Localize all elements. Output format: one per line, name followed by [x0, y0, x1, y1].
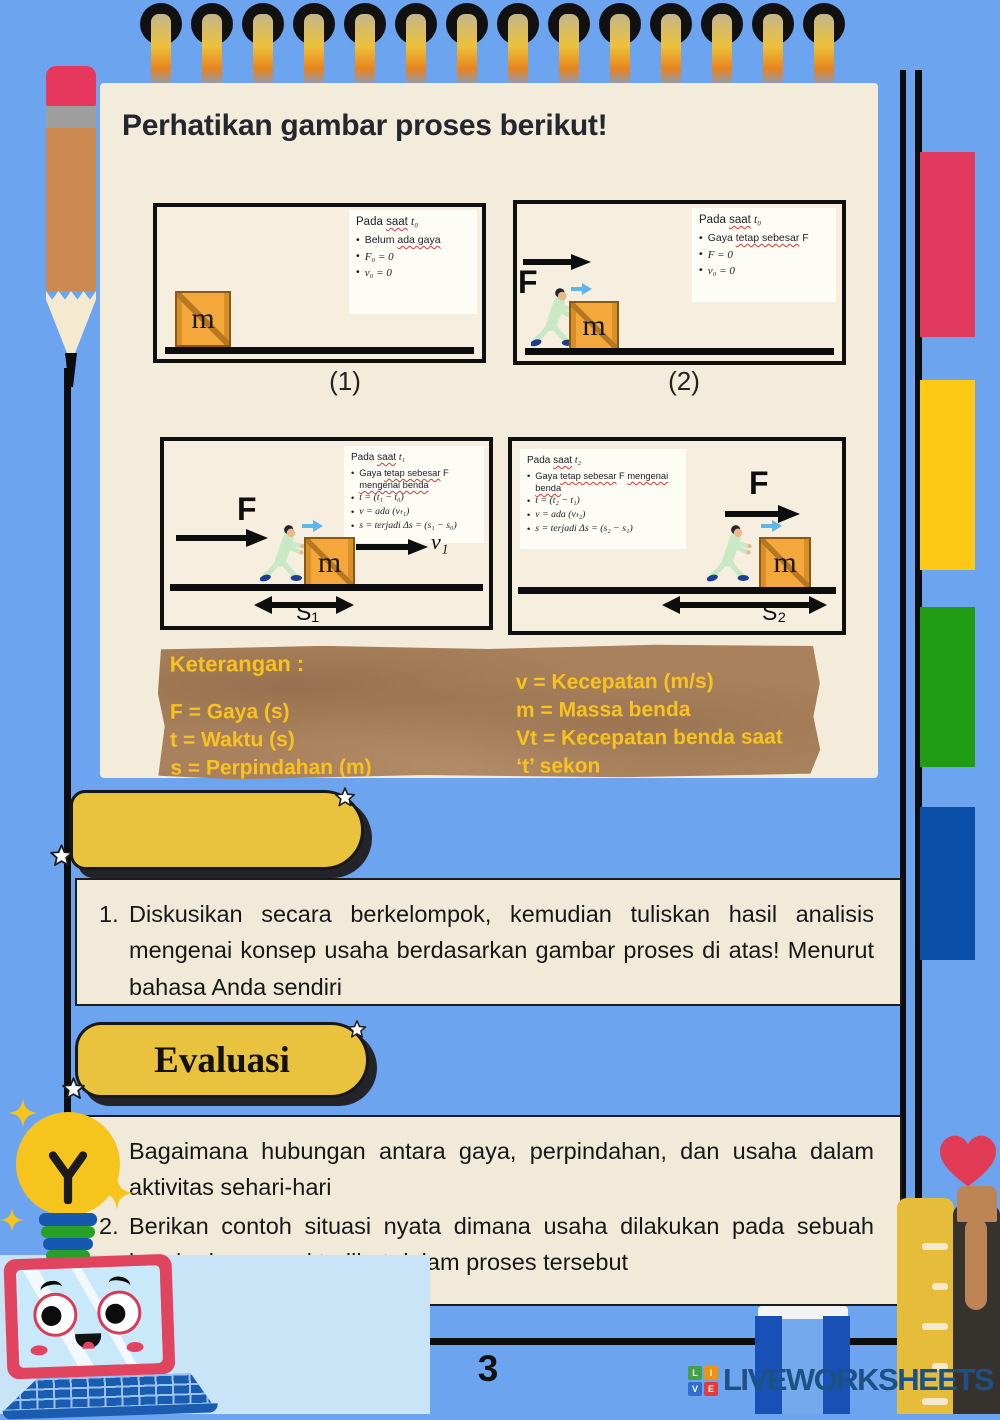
floor-line	[165, 347, 474, 354]
heart-icon	[940, 1135, 996, 1187]
star-icon	[48, 843, 75, 870]
keterangan-entry: t = Waktu (s)	[170, 726, 371, 755]
keterangan-box: Keterangan : F = Gaya (s) t = Waktu (s) …	[158, 643, 821, 779]
info-bullet: v = ada (vₜ₂)	[527, 509, 681, 522]
eye	[97, 1290, 143, 1336]
info-bullet: Gaya tetap sebesar F mengenai benda	[351, 467, 479, 491]
pen-clip	[965, 1218, 987, 1310]
pen-cap	[957, 1186, 997, 1222]
info-card: Pada saat t₀ Belum ada gaya F₀ = 0 v₀ = …	[349, 210, 477, 314]
pencil-ferrule	[46, 106, 96, 128]
keterangan-entry: ‘t’ sekon	[516, 751, 783, 780]
pencil-body	[46, 128, 96, 291]
discussion-box: 1. Diskusikan secara berkelompok, kemudi…	[75, 878, 902, 1006]
motion-arrow-icon	[302, 519, 324, 533]
info-title: Pada saat t₀	[356, 216, 472, 228]
liveworksheets-brand[interactable]: LIVEWORKSHEETS	[723, 1362, 993, 1398]
keterangan-entry: m = Massa benda	[516, 695, 783, 724]
info-bullet: Belum ada gaya	[356, 234, 472, 248]
crate-label: m	[191, 304, 214, 334]
blush	[30, 1345, 47, 1356]
lightbulb-icon	[16, 1112, 120, 1216]
mouth	[75, 1333, 102, 1349]
pencil-graphic	[46, 66, 96, 387]
distance-label: S₂	[762, 599, 786, 626]
crate-label: m	[582, 311, 605, 341]
laptop-screen	[3, 1254, 175, 1380]
list-item: 1. Diskusikan secara berkelompok, kemudi…	[99, 896, 874, 1005]
motion-arrow-icon	[571, 282, 593, 296]
ruler-tick	[922, 1323, 948, 1330]
ruler-tick	[922, 1243, 948, 1250]
floor-line	[518, 587, 836, 594]
crate: m	[175, 291, 231, 347]
pencil-eraser	[46, 66, 96, 106]
list-number: 1.	[99, 896, 129, 1005]
info-title: Pada saat t₀	[699, 214, 831, 226]
crate: m	[569, 301, 619, 351]
figure-2: F m Pada saat t₀ Gaya tetap sebesar F F …	[513, 200, 846, 365]
info-bullet: F = 0	[699, 248, 831, 262]
bookmark-tab-green	[920, 607, 975, 767]
info-bullet: t = (t₂ − t₁)	[527, 495, 681, 508]
evaluasi-banner: Evaluasi	[75, 1022, 369, 1098]
keterangan-entry: s = Perpindahan (m)	[170, 754, 371, 783]
person-figure	[707, 524, 753, 586]
crate: m	[759, 537, 811, 589]
crate: m	[304, 537, 355, 588]
sparkle-icon	[0, 1208, 24, 1232]
info-bullet: t = (t₁ − t₀)	[351, 492, 479, 505]
figure-1: m Pada saat t₀ Belum ada gaya F₀ = 0 v₀ …	[153, 203, 486, 363]
bookmark-tab-yellow	[920, 380, 975, 570]
ruler-tick	[932, 1283, 948, 1290]
lightbulb-base	[39, 1213, 97, 1226]
highlight-banner	[70, 790, 364, 870]
info-bullet: Gaya tetap sebesar F	[699, 232, 831, 246]
bookmark-tab-red	[920, 152, 975, 337]
footer-line	[430, 1338, 935, 1345]
keterangan-entry: v = Kecepatan (m/s)	[516, 667, 783, 696]
laptop-screen-face	[16, 1265, 163, 1368]
info-title: Pada saat t₂	[527, 455, 681, 466]
crate-label: m	[318, 548, 341, 578]
velocity-label: v₁	[431, 529, 448, 555]
force-label: F	[237, 493, 257, 525]
page-number: 3	[452, 1348, 524, 1390]
keterangan-left-column: F = Gaya (s) t = Waktu (s) s = Perpindah…	[170, 698, 372, 783]
page-title: Perhatikan gambar proses berikut!	[122, 109, 607, 143]
evaluasi-title: Evaluasi	[154, 1039, 290, 1082]
figure-label: (1)	[285, 366, 405, 397]
eye	[33, 1292, 79, 1338]
info-bullet: F₀ = 0	[356, 250, 472, 264]
keterangan-entry: F = Gaya (s)	[170, 698, 371, 727]
pencil-tip	[46, 291, 96, 353]
star-icon	[60, 1076, 87, 1103]
person-figure	[260, 524, 306, 586]
info-bullet: s = terjadi Δs = (s₁ − s₀)	[351, 520, 479, 533]
blush	[126, 1342, 143, 1353]
info-bullet: Gaya tetap sebesar F mengenai benda	[527, 470, 681, 494]
bookmark-tab-blue	[920, 807, 975, 960]
list-text: Bagaimana hubungan antara gaya, perpinda…	[129, 1133, 874, 1206]
keterangan-entry: Vt = Kecepatan benda saat	[516, 723, 783, 752]
pencil-lead	[46, 353, 96, 387]
star-icon	[333, 786, 357, 810]
list-item: 1. Bagaimana hubungan antara gaya, perpi…	[99, 1133, 874, 1206]
floor-line	[170, 584, 483, 591]
figure-label: (2)	[624, 366, 744, 397]
crate-label: m	[773, 548, 796, 578]
info-bullet: v₀ = 0	[699, 264, 831, 278]
worksheet-page: Perhatikan gambar proses berikut! m Pada…	[0, 0, 1000, 1414]
liveworksheets-logo-icon[interactable]: L I V E	[688, 1366, 718, 1396]
worksheet-panel: Perhatikan gambar proses berikut! m Pada…	[100, 83, 878, 778]
right-rule-line	[900, 70, 906, 1202]
floor-line	[525, 348, 834, 355]
info-title: Pada saat t₁	[351, 452, 479, 463]
laptop-mascot	[0, 1246, 218, 1417]
info-card: Pada saat t₁ Gaya tetap sebesar F mengen…	[344, 446, 484, 543]
figure-4: Pada saat t₂ Gaya tetap sebesar F mengen…	[508, 437, 846, 635]
keterangan-heading: Keterangan :	[170, 651, 305, 678]
distance-arrow-icon	[662, 594, 827, 616]
ruler-tick	[922, 1398, 948, 1405]
distance-label: S₁	[296, 599, 319, 626]
figure-3: Pada saat t₁ Gaya tetap sebesar F mengen…	[160, 437, 493, 630]
info-bullet: s = terjadi Δs = (s₂ − s₁)	[527, 523, 681, 536]
list-text: Diskusikan secara berkelompok, kemudian …	[129, 896, 874, 1005]
keterangan-right-column: v = Kecepatan (m/s) m = Massa benda Vt =…	[516, 667, 783, 780]
force-label: F	[749, 467, 769, 499]
velocity-arrow-icon	[356, 537, 428, 557]
star-icon	[346, 1019, 368, 1041]
lightbulb-base	[41, 1226, 95, 1238]
motion-arrow-icon	[761, 519, 783, 533]
info-bullet: v = ada (vₜ₁)	[351, 506, 479, 519]
lightbulb-base	[43, 1238, 93, 1250]
info-card: Pada saat t₀ Gaya tetap sebesar F F = 0 …	[692, 208, 836, 302]
info-card: Pada saat t₂ Gaya tetap sebesar F mengen…	[520, 449, 686, 549]
info-bullet: v₀ = 0	[356, 266, 472, 280]
force-arrow-icon	[176, 527, 268, 549]
